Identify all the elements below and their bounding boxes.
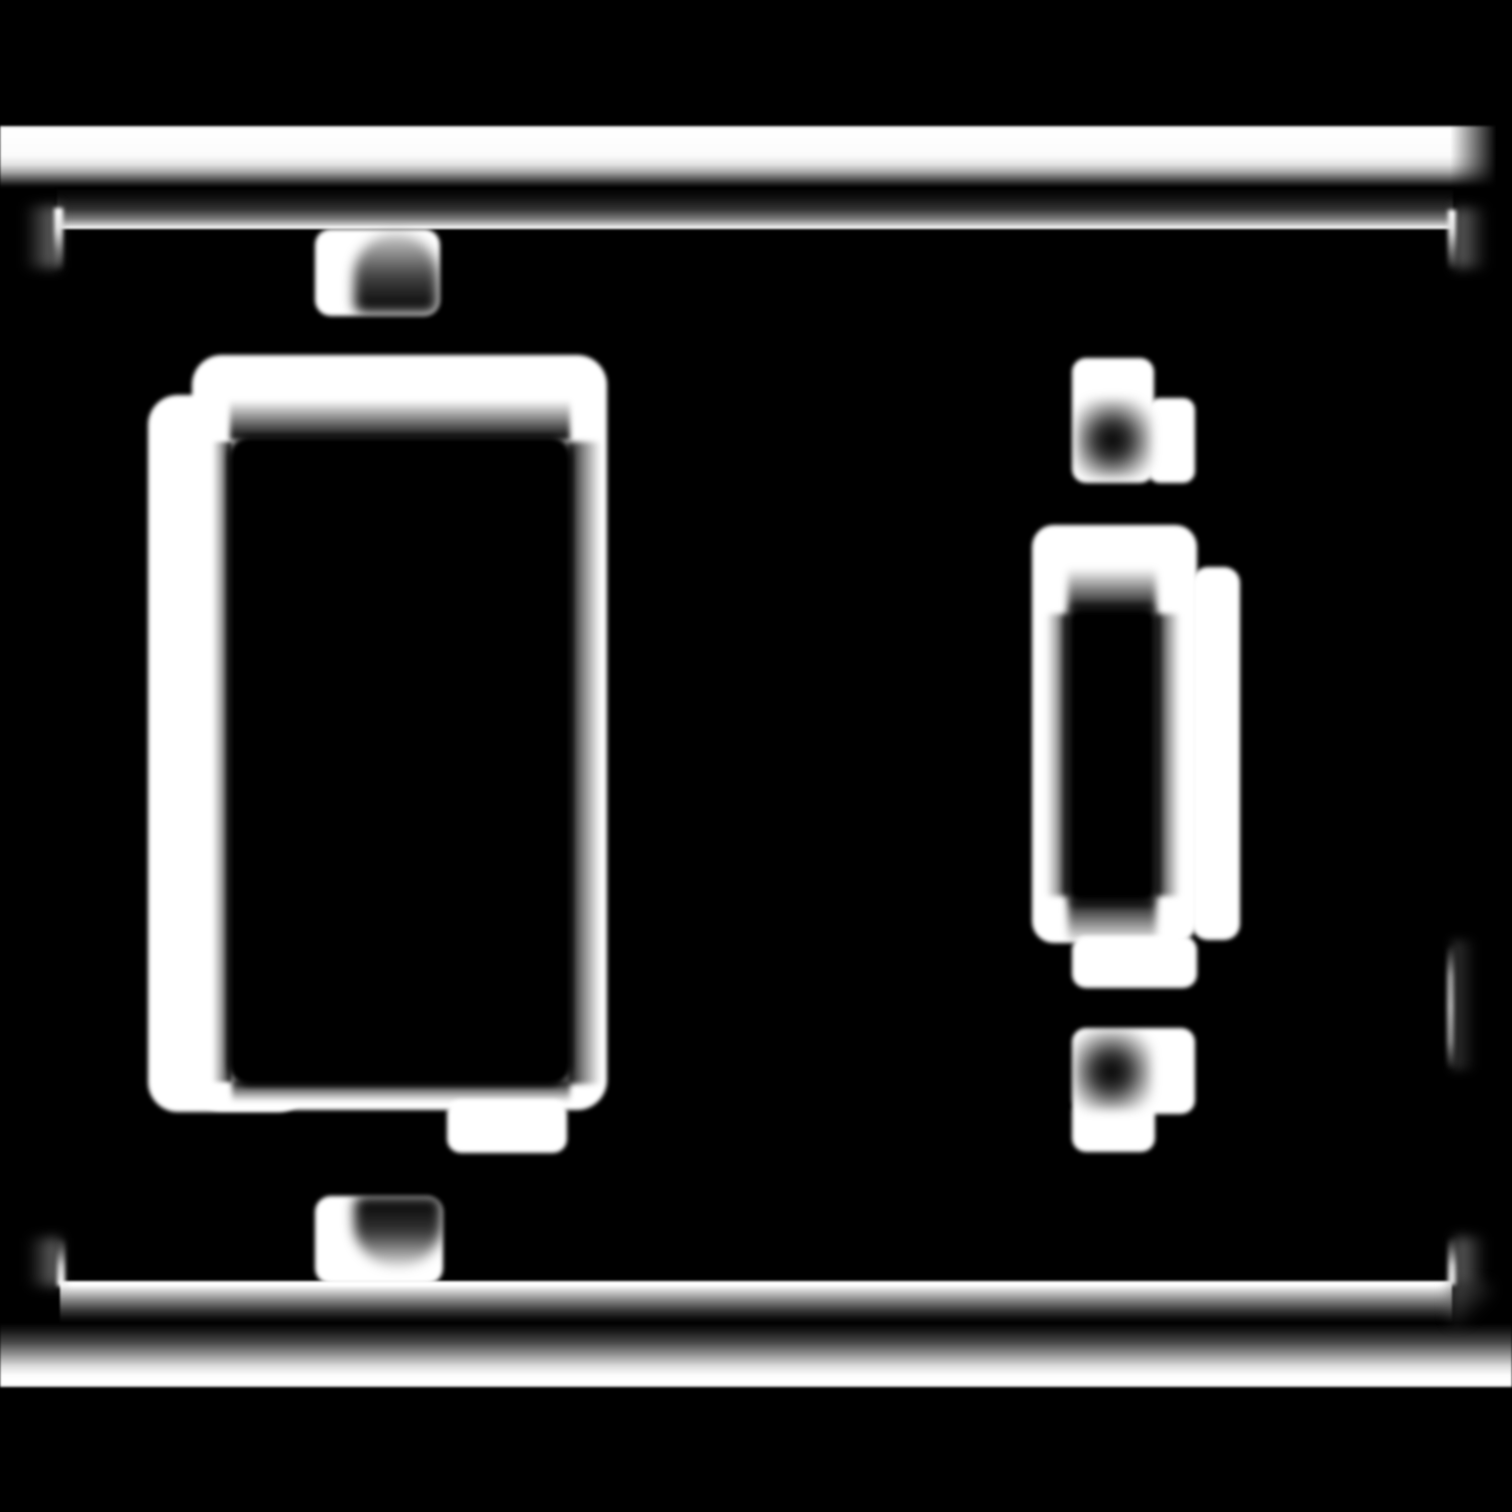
frame-corner-br-smear [1450,1284,1492,1324]
frame-corner-br-stub [1448,1235,1456,1285]
frame-corner-bl-halo [22,1238,60,1286]
frame-corner-tr-stub [1448,210,1456,273]
toggle-screw-bottom-hole [1074,1030,1152,1110]
rocker-inner-opening [228,436,572,1086]
rocker-screw-top-hole [354,234,438,313]
frame-top-line [57,188,1453,229]
rocker-smear-left [212,442,232,1082]
rocker-smear-bottom [232,1080,570,1102]
frame-corner-bl-stub [57,1236,65,1286]
toggle-outline-step [1192,567,1240,940]
rocker-smear-right [567,442,601,1084]
toggle-inner-opening [1066,606,1158,904]
frame-right-mid-halo [1452,940,1482,1070]
toggle-screw-top-step [1148,398,1195,483]
frame-corner-tr-halo [1455,208,1493,268]
plate-bottom-edge-band [0,1323,1512,1387]
toggle-smear-left [1046,614,1070,896]
toggle-smear-top [1068,568,1156,612]
frame-corner-br-halo [1455,1237,1491,1285]
frame-corner-tl-stub [54,208,63,274]
plate-top-band-right-fade [1450,120,1512,195]
toggle-smear-right [1154,614,1180,896]
toggle-bottom-tab [1072,936,1197,988]
rocker-bottom-small-tab [447,1100,567,1153]
wall-plate-diagram [0,0,1512,1512]
frame-bottom-line [60,1281,1452,1323]
plate-top-edge-band [0,126,1512,188]
frame-right-mid-segment [1447,945,1454,1069]
frame-corner-tl-halo [18,206,58,268]
toggle-screw-top-hole [1076,399,1152,478]
rocker-smear-top [230,400,570,440]
